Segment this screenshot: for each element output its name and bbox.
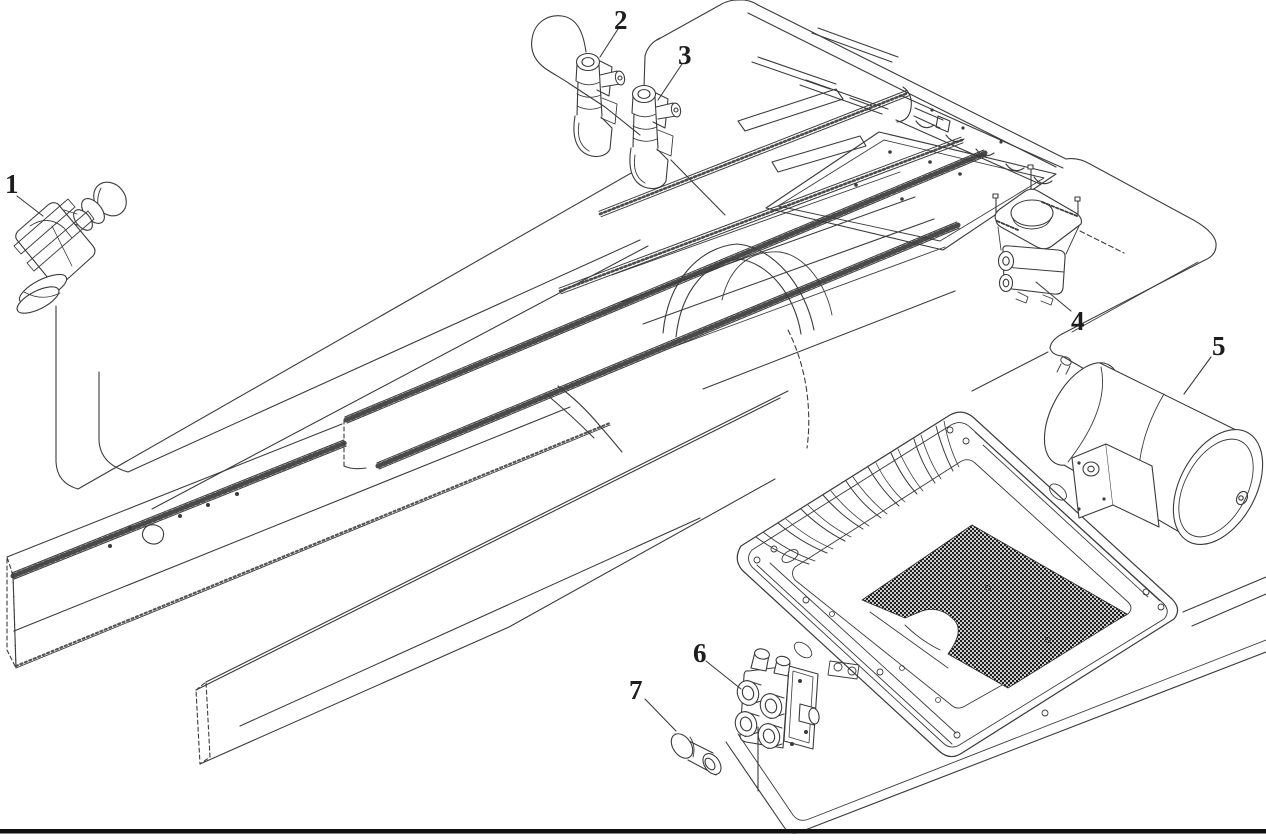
svg-text:1: 1	[5, 169, 19, 199]
svg-text:3: 3	[678, 40, 692, 70]
svg-text:2: 2	[614, 5, 628, 35]
svg-text:7: 7	[629, 675, 643, 705]
svg-text:4: 4	[1071, 306, 1085, 336]
svg-text:6: 6	[693, 638, 707, 668]
svg-text:5: 5	[1212, 331, 1226, 361]
